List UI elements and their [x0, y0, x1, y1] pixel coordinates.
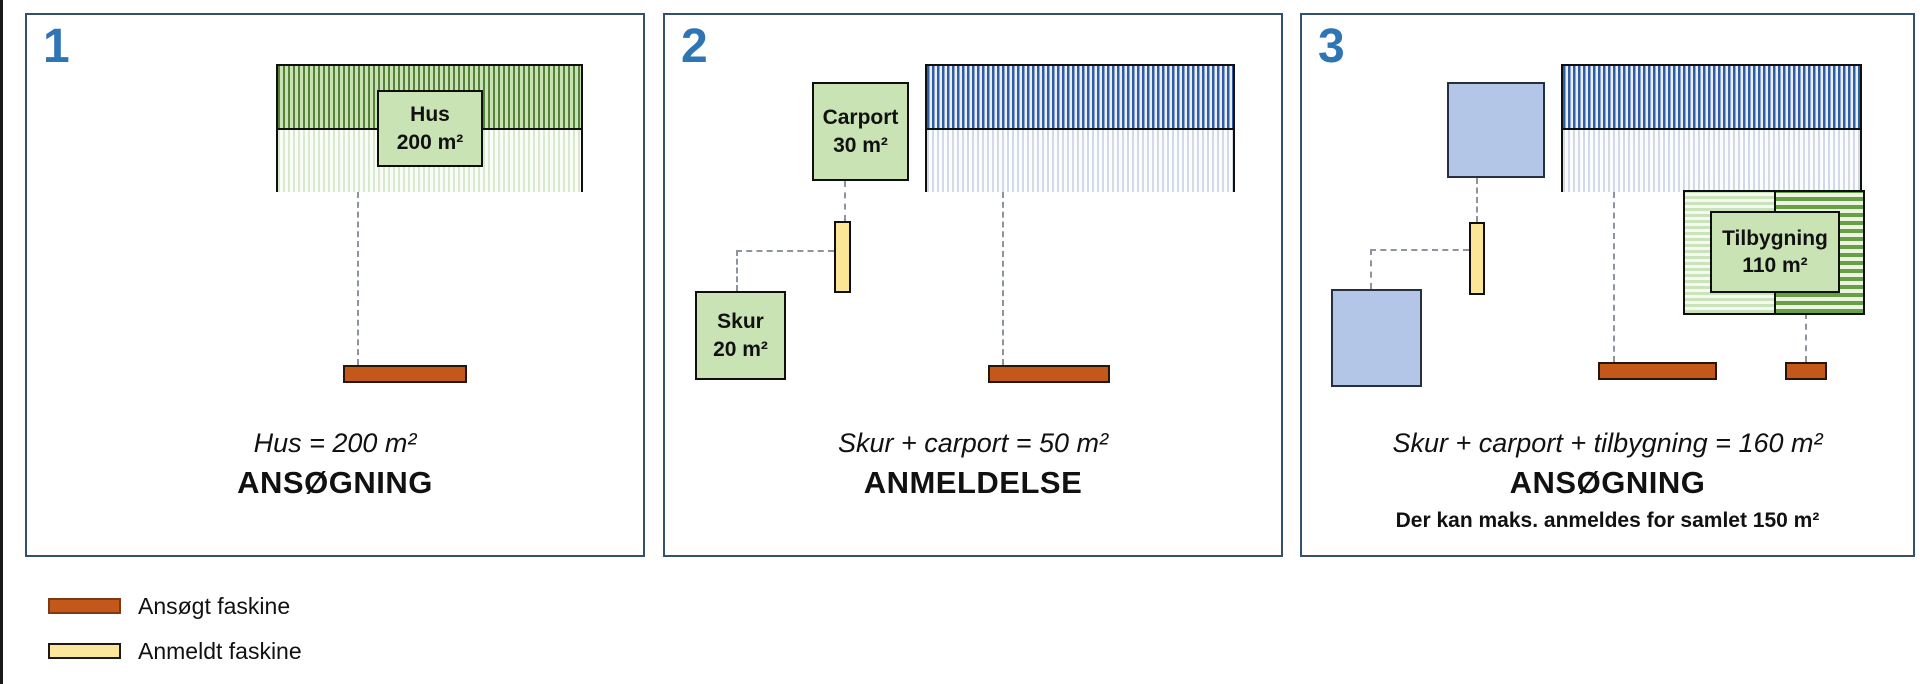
panel-3-number: 3 — [1318, 19, 1345, 74]
skur-label-area: 20 m² — [713, 336, 768, 363]
house-roof-striped-band — [927, 66, 1233, 130]
legend-item-anmeldt-faskine: Anmeldt faskine — [48, 637, 302, 665]
skur-to-faskine-dashed-line-horizontal — [1370, 249, 1469, 251]
panel-3-formula: Skur + carport + tilbygning = 160 m² — [1302, 428, 1913, 459]
carport-label-box: Carport 30 m² — [812, 82, 909, 181]
screenshot-left-edge-line — [0, 0, 3, 684]
hus-label-name: Hus — [410, 101, 450, 128]
ansogt-faskine-rect — [988, 365, 1110, 383]
skur-label-box: Skur 20 m² — [695, 291, 786, 380]
panel-2-number: 2 — [681, 19, 708, 74]
panel-3-note: Der kan maks. anmeldes for samlet 150 m² — [1302, 509, 1913, 533]
carport-label-area: 30 m² — [833, 132, 888, 159]
panel-2-formula: Skur + carport = 50 m² — [665, 428, 1281, 459]
panel-2-status: ANMELDELSE — [665, 465, 1281, 501]
ansogt-faskine-rect-large — [1598, 362, 1717, 380]
house-lower-striped-band — [1563, 130, 1860, 192]
carport-label-name: Carport — [823, 104, 899, 131]
tilbygning-label-name: Tilbygning — [1722, 225, 1828, 252]
existing-carport-square — [1447, 82, 1545, 178]
panel-1-number: 1 — [43, 19, 70, 74]
existing-house-building — [1561, 64, 1862, 192]
house-lower-striped-band — [927, 130, 1233, 192]
panel-1-status: ANSØGNING — [27, 465, 643, 501]
ansogt-faskine-label: Ansøgt faskine — [138, 593, 290, 620]
skur-to-faskine-dashed-line-horizontal — [736, 250, 834, 252]
ansogt-faskine-rect-small — [1785, 362, 1827, 380]
tilbygning-label-box: Tilbygning 110 m² — [1710, 211, 1840, 293]
hus-to-faskine-dashed-line — [357, 192, 359, 365]
tilbygning-to-faskine-dashed-line — [1805, 313, 1807, 362]
carport-to-faskine-dashed-line — [844, 181, 846, 221]
anmeldt-faskine-label: Anmeldt faskine — [138, 638, 302, 665]
hus-label-area: 200 m² — [397, 129, 464, 156]
panel-1-formula: Hus = 200 m² — [27, 428, 643, 459]
carport-to-faskine-dashed-line — [1476, 178, 1478, 222]
panel-3: 3 Tilbygning 110 m² Skur + carport + til… — [1300, 13, 1915, 557]
house-to-faskine-dashed-line — [1002, 192, 1004, 365]
tilbygning-label-area: 110 m² — [1742, 252, 1807, 279]
hus-label-box: Hus 200 m² — [377, 90, 483, 167]
existing-skur-square — [1331, 289, 1422, 387]
house-to-faskine-dashed-line — [1613, 192, 1615, 362]
anmeldt-faskine-rect — [834, 221, 851, 293]
panel-1: 1 Hus 200 m² Hus = 200 m² ANSØGNING — [25, 13, 645, 557]
skur-label-name: Skur — [717, 308, 764, 335]
anmeldt-faskine-swatch — [48, 643, 121, 659]
skur-to-faskine-dashed-line-vertical — [736, 250, 738, 291]
skur-to-faskine-dashed-line-vertical — [1370, 249, 1372, 289]
ansogt-faskine-swatch — [48, 598, 121, 614]
ansogt-faskine-rect — [343, 365, 467, 383]
existing-house-building — [925, 64, 1235, 192]
house-roof-striped-band — [1563, 66, 1860, 130]
legend-item-ansogt-faskine: Ansøgt faskine — [48, 592, 290, 620]
panel-3-status: ANSØGNING — [1302, 465, 1913, 501]
faskine-diagram: { "panels": [ { "number": "1", "hus_labe… — [0, 0, 1920, 684]
anmeldt-faskine-rect — [1469, 222, 1485, 295]
panel-2: 2 Carport 30 m² Skur 20 m² Skur + carpor… — [663, 13, 1283, 557]
